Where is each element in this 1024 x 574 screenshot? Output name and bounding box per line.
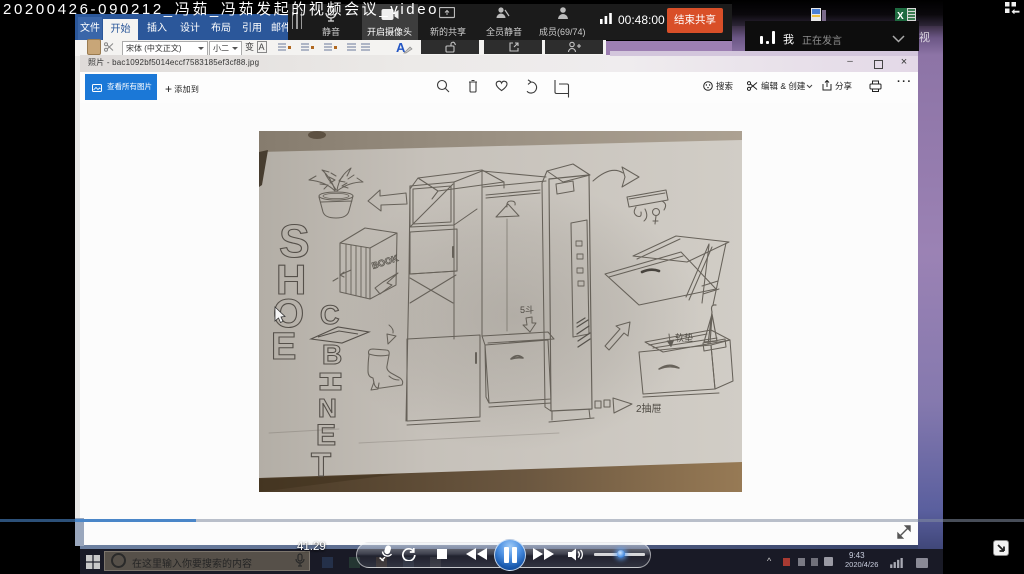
svg-text:5斗: 5斗	[520, 305, 534, 315]
svg-text:B: B	[322, 339, 342, 370]
svg-text:T: T	[311, 446, 331, 483]
svg-text:C: C	[320, 300, 340, 330]
svg-text:2抽屉: 2抽屉	[636, 402, 662, 415]
svg-text:软垫: 软垫	[675, 332, 693, 343]
svg-text:E: E	[271, 326, 296, 368]
